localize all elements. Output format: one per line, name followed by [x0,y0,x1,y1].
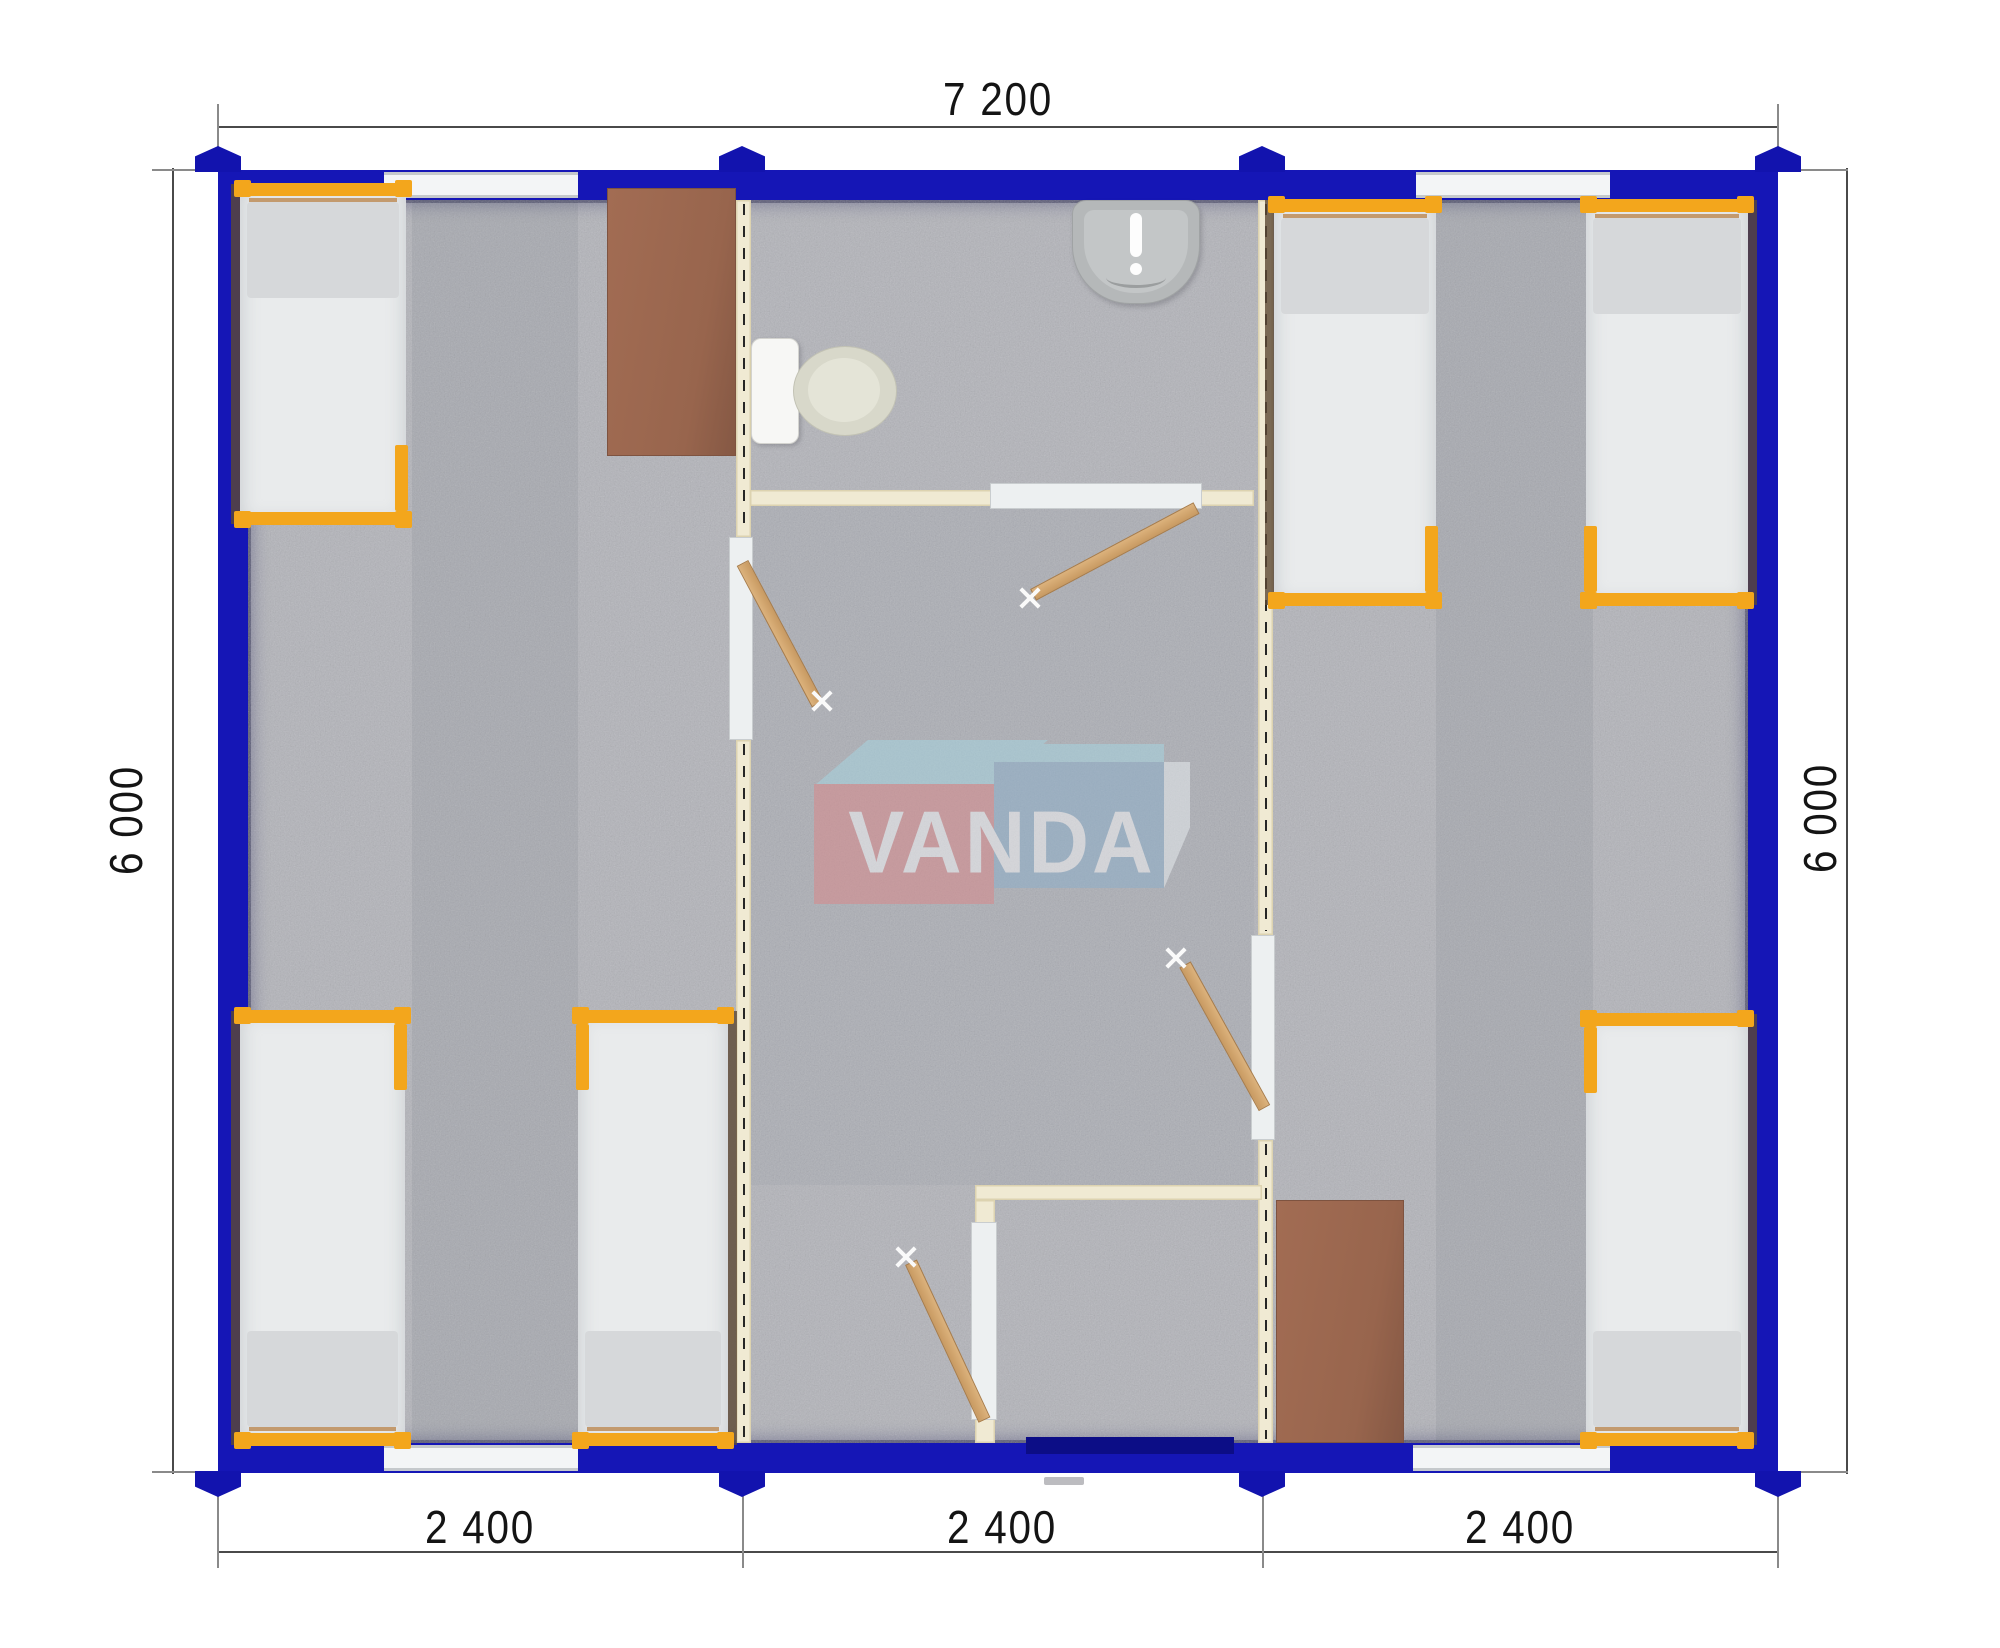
dimension-label-left: 6 000 [98,732,154,908]
roof-joint-marker-top-2 [719,146,765,172]
door-opening-right-partition [1251,935,1275,1140]
bathroom-sliding-door [990,483,1202,509]
dimension-label-right: 6 000 [1792,730,1848,906]
dimension-label-bottom-3: 2 400 [1388,1500,1652,1554]
bed-top-left [240,186,406,522]
bed-top-far-right [1586,202,1748,603]
headboard-trim [249,198,397,202]
vanda-watermark: VANDA [812,738,1190,908]
door-swing-cross-left-bedroom [809,688,835,714]
washbasin [1072,200,1200,304]
pillow [247,202,399,298]
roof-joint-marker-top-1 [195,146,241,172]
entrance-step [1044,1477,1084,1485]
vanda-logo-text: VANDA [822,792,1182,894]
window-bottom-left [384,1445,578,1471]
desk-top-left [607,188,736,456]
roof-joint-marker-top-4 [1755,146,1801,172]
window-top-left [384,172,578,198]
roof-joint-marker-bottom-1 [195,1471,241,1497]
toilet-tank [751,338,799,444]
window-top-right [1416,172,1610,198]
dimension-line-left [172,168,174,1474]
module-partition-left-upper [736,200,751,537]
bed-shadow [231,184,240,524]
toilet-bowl [793,346,897,436]
bed-rail [236,512,410,525]
dimension-label-top: 7 200 [866,72,1130,126]
bed-bottom-middle-left [578,1013,728,1443]
roof-joint-marker-top-3 [1239,146,1285,172]
module-partition-left-lower [736,740,751,1443]
dimension-label-bottom-2: 2 400 [870,1500,1134,1554]
entrance-door [1026,1437,1234,1454]
door-swing-cross-bathroom [1017,585,1043,611]
basin-overflow-line [1106,267,1166,288]
bed-post [395,445,408,511]
bed-bottom-right [1586,1016,1748,1443]
toilet-seat [808,358,880,422]
door-swing-cross-right-bedroom [1163,945,1189,971]
floor-plan-page: { "watermark": { "text": "VANDA", "color… [0,0,2000,1648]
bed-rail [236,183,410,196]
desk-bottom-right [1276,1200,1404,1443]
faucet-icon [1130,213,1142,257]
door-swing-cross-vestibule [893,1244,919,1270]
bed-top-middle-right [1274,202,1436,603]
bed-bottom-far-left [240,1013,405,1443]
roof-joint-marker-bottom-3 [1239,1471,1285,1497]
dimension-label-bottom-1: 2 400 [348,1500,612,1554]
vestibule-wall-horizontal [975,1185,1262,1200]
dimension-line-top [218,126,1778,128]
roof-joint-marker-bottom-4 [1755,1471,1801,1497]
roof-joint-marker-bottom-2 [719,1471,765,1497]
